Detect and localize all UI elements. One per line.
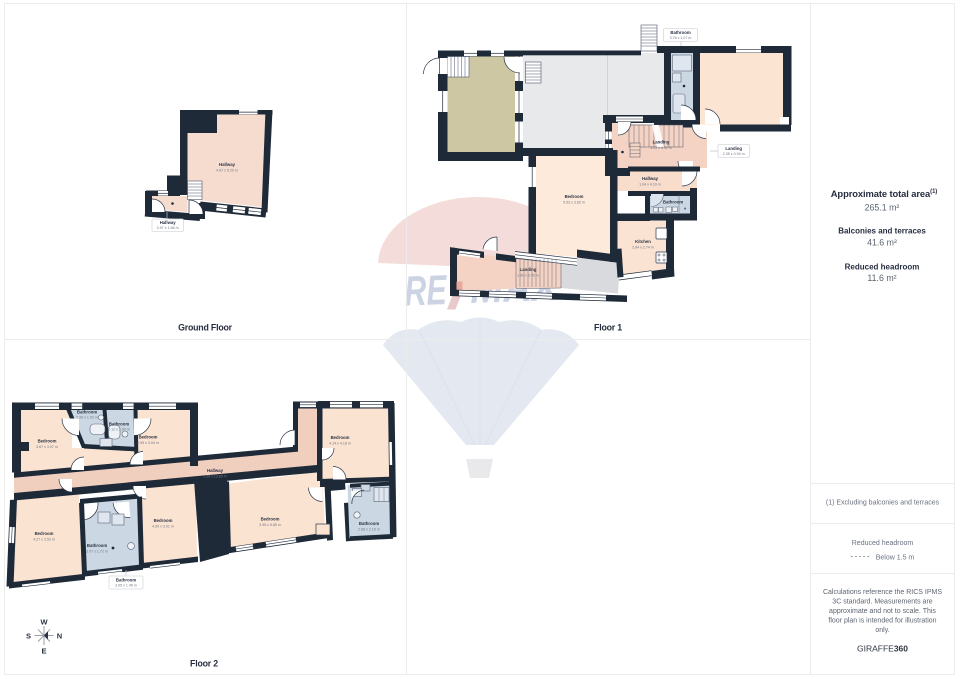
svg-text:N: N xyxy=(57,632,62,641)
svg-text:Bathroom: Bathroom xyxy=(670,30,690,35)
svg-text:W: W xyxy=(40,618,48,627)
svg-text:1.90 x 3.45 m: 1.90 x 3.45 m xyxy=(517,274,539,278)
svg-text:4.27 x 3.53 m: 4.27 x 3.53 m xyxy=(33,538,55,542)
svg-text:Reduced headroom: Reduced headroom xyxy=(852,540,914,547)
svg-text:GIRAFFE360: GIRAFFE360 xyxy=(857,644,908,654)
svg-text:2.84 x 2.74 m: 2.84 x 2.74 m xyxy=(632,246,654,250)
svg-text:4.14 x 4.18 m: 4.14 x 4.18 m xyxy=(329,442,351,446)
svg-text:Kitchen: Kitchen xyxy=(635,239,651,244)
svg-text:Hallway: Hallway xyxy=(642,176,659,181)
svg-text:Hallway: Hallway xyxy=(219,162,236,167)
svg-text:Ground Floor: Ground Floor xyxy=(178,323,233,333)
svg-text:41.6 m²: 41.6 m² xyxy=(867,238,897,248)
svg-text:Bathroom: Bathroom xyxy=(663,200,683,205)
svg-text:Balconies and terraces: Balconies and terraces xyxy=(838,227,926,236)
svg-text:Bedroom: Bedroom xyxy=(139,435,158,440)
svg-text:Bedroom: Bedroom xyxy=(565,194,584,199)
svg-text:3.07 x 1.72 m: 3.07 x 1.72 m xyxy=(86,550,108,554)
svg-text:2.26 x 1.02 m: 2.26 x 1.02 m xyxy=(76,416,98,420)
svg-text:3C standard. Measurements are: 3C standard. Measurements are xyxy=(832,599,932,606)
svg-text:Approximate total area(1): Approximate total area(1) xyxy=(831,188,938,199)
svg-text:Bedroom: Bedroom xyxy=(261,517,280,522)
svg-text:11.6 m²: 11.6 m² xyxy=(867,273,896,283)
svg-text:E: E xyxy=(41,647,46,656)
svg-text:Hallway: Hallway xyxy=(207,468,224,473)
svg-text:Bathroom: Bathroom xyxy=(109,422,129,427)
svg-text:RE: RE xyxy=(404,266,449,314)
svg-text:Hallway: Hallway xyxy=(160,220,177,225)
svg-text:Floor 2: Floor 2 xyxy=(190,659,218,669)
svg-text:floor plan is intended for ill: floor plan is intended for illustration xyxy=(828,618,936,625)
svg-text:Bathroom: Bathroom xyxy=(359,521,379,526)
svg-text:(1) Excluding balconies and te: (1) Excluding balconies and terraces xyxy=(826,500,940,507)
svg-text:Bathroom: Bathroom xyxy=(116,578,136,583)
svg-text:Floor 1: Floor 1 xyxy=(594,323,622,333)
svg-text:3.67 x 3.07 m: 3.67 x 3.07 m xyxy=(36,445,58,449)
svg-text:Landing: Landing xyxy=(653,140,670,145)
svg-text:Bedroom: Bedroom xyxy=(154,518,173,523)
svg-text:Bedroom: Bedroom xyxy=(331,435,350,440)
svg-text:4.00 x 3.01 m: 4.00 x 3.01 m xyxy=(152,525,174,529)
svg-text:Bedroom: Bedroom xyxy=(38,439,57,444)
svg-text:3.95 x 5.85 m: 3.95 x 5.85 m xyxy=(259,523,281,527)
svg-text:2.35 x 0.94 m: 2.35 x 0.94 m xyxy=(723,152,745,156)
svg-text:2.95 x 3.04 m: 2.95 x 3.04 m xyxy=(137,441,159,445)
svg-text:3.25 x 4.92 m: 3.25 x 4.92 m xyxy=(650,146,672,150)
svg-text:1.04 x 4.19 m: 1.04 x 4.19 m xyxy=(639,183,661,187)
svg-text:3.05 x 1.45 m: 3.05 x 1.45 m xyxy=(115,584,137,588)
svg-text:Bathroom: Bathroom xyxy=(87,543,107,548)
svg-text:Landing: Landing xyxy=(725,146,742,151)
svg-text:only.: only. xyxy=(875,627,889,634)
svg-text:4.67 x 5.20 m: 4.67 x 5.20 m xyxy=(216,169,238,173)
svg-text:Bathroom: Bathroom xyxy=(77,410,97,415)
svg-text:2.68 x 2.15 m: 2.68 x 2.15 m xyxy=(358,528,380,532)
svg-text:3.76 x 1.07 m: 3.76 x 1.07 m xyxy=(670,36,692,40)
svg-text:approximate and not to scale.: approximate and not to scale. This xyxy=(829,608,936,615)
svg-text:Landing: Landing xyxy=(520,267,537,272)
svg-text:S: S xyxy=(26,632,31,641)
svg-text:Bedroom: Bedroom xyxy=(35,531,54,536)
svg-text:Calculations reference the RIC: Calculations reference the RICS IPMS xyxy=(823,589,942,596)
svg-text:Below 1.5 m: Below 1.5 m xyxy=(876,555,915,562)
svg-text:0.97 x 1.66 m: 0.97 x 1.66 m xyxy=(157,226,179,230)
svg-text:265.1 m²: 265.1 m² xyxy=(865,203,900,213)
svg-text:5.53 x 3.83 m: 5.53 x 3.83 m xyxy=(563,201,585,205)
svg-text:2.12 x 1.50 m: 2.12 x 1.50 m xyxy=(108,428,130,432)
svg-text:Reduced headroom: Reduced headroom xyxy=(845,263,920,272)
